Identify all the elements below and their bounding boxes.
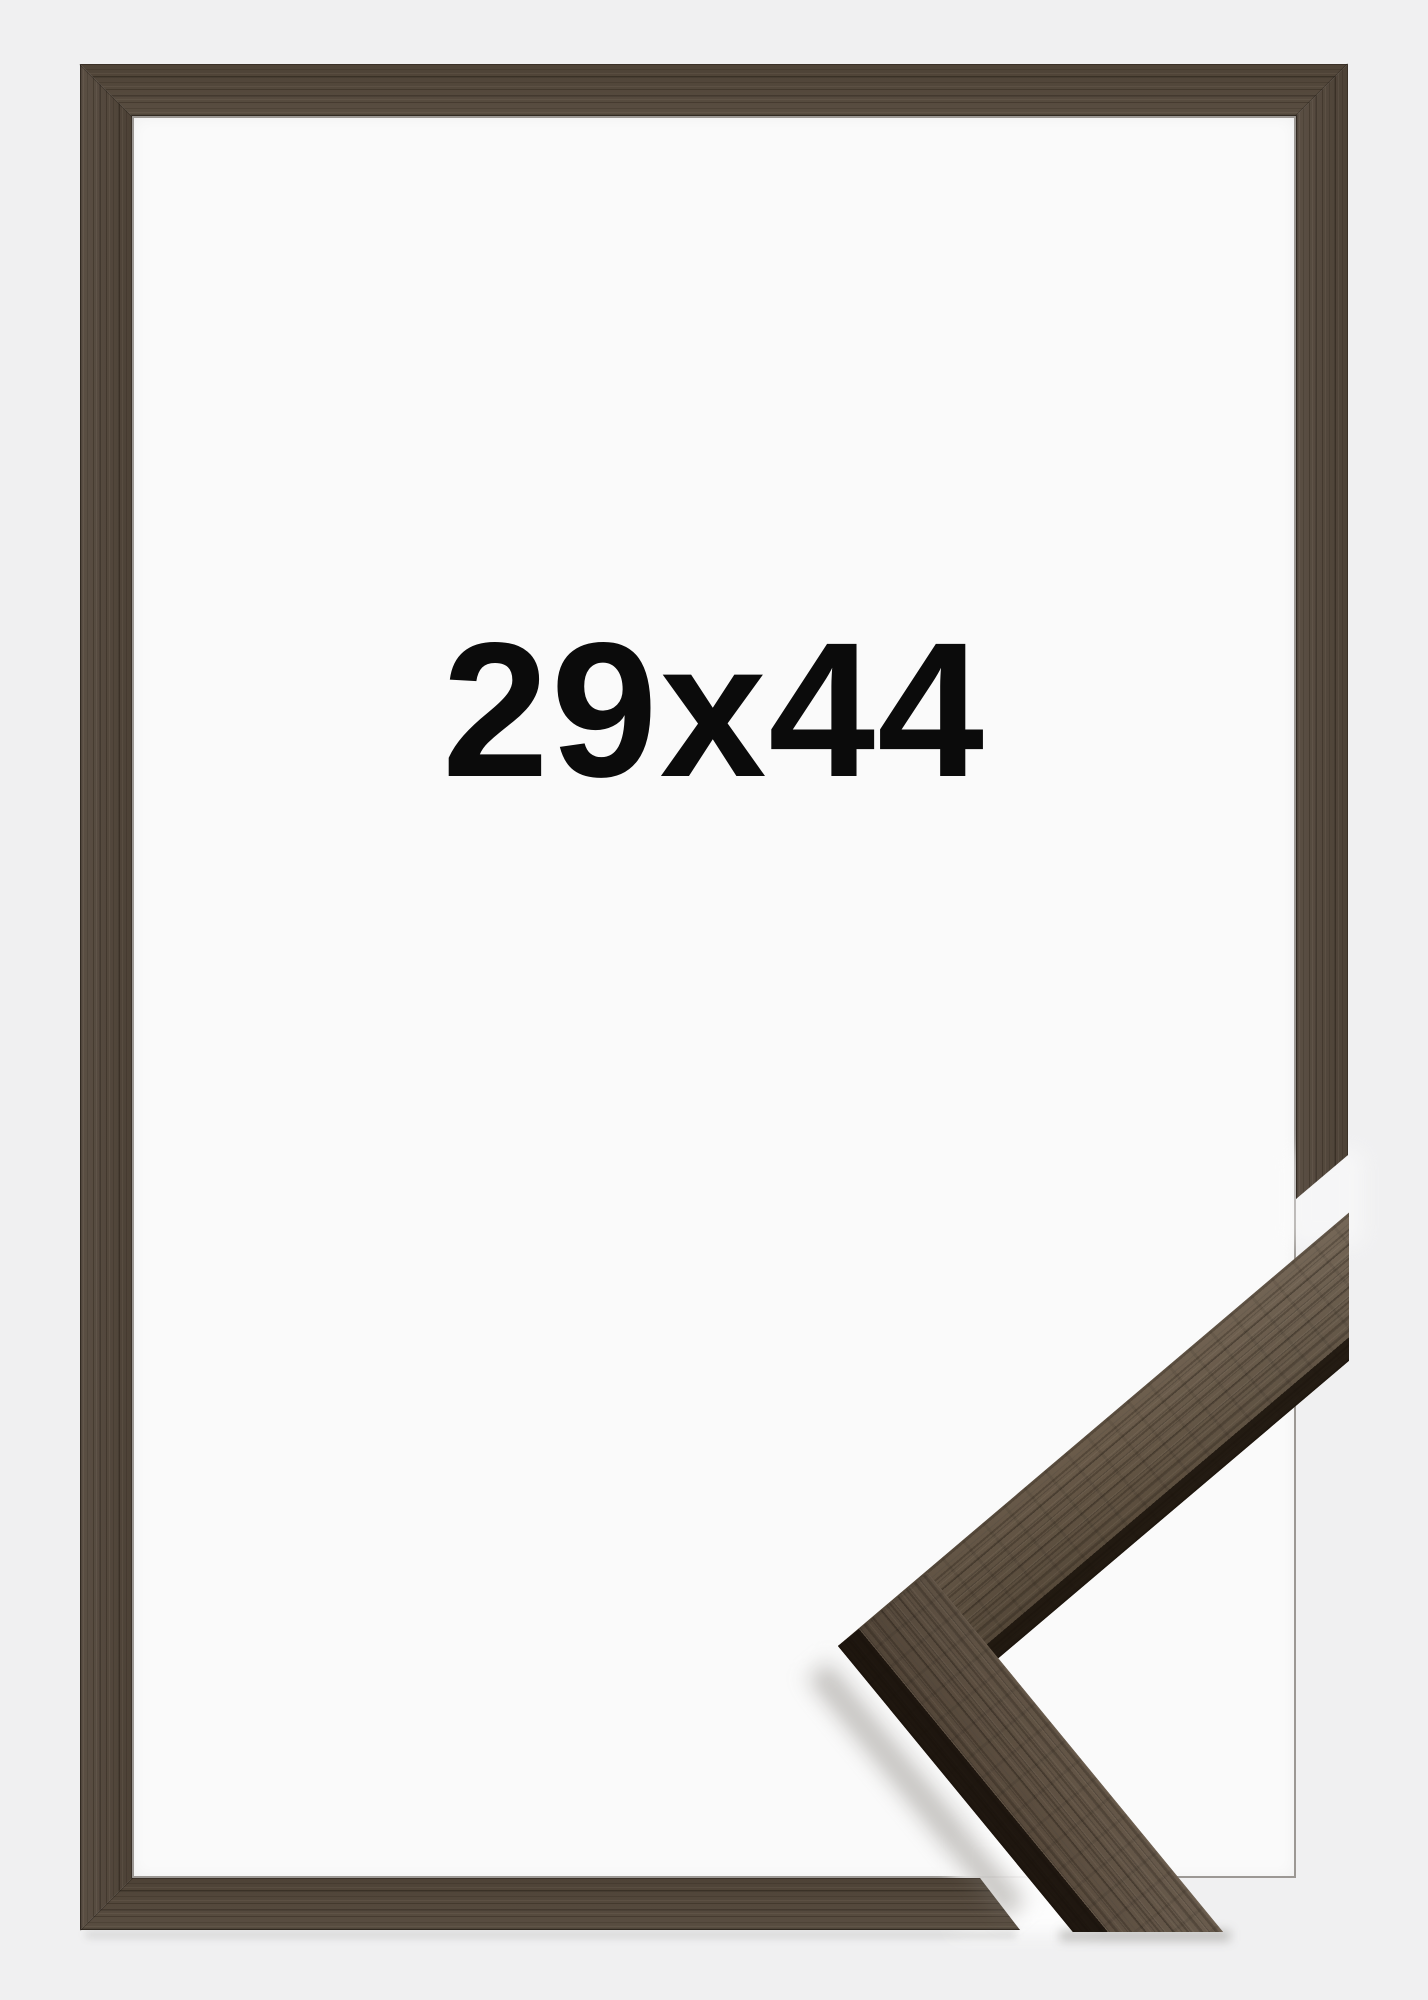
product-image: 29x44 <box>0 0 1428 2000</box>
size-label: 29x44 <box>0 620 1428 800</box>
frame-rail-left <box>80 64 132 1930</box>
sample-arm-lower <box>838 1572 1283 1932</box>
corner-profile-sample <box>818 1190 1349 1932</box>
frame-rail-top <box>80 64 1348 116</box>
frame-shadow <box>86 1931 1016 1938</box>
